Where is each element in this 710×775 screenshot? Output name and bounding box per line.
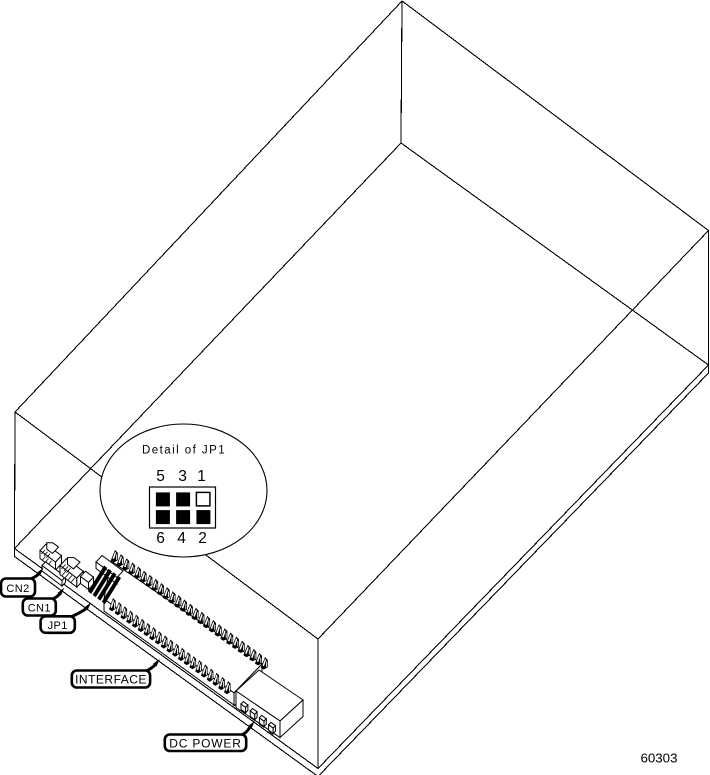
svg-text:60303: 60303 xyxy=(641,751,678,766)
svg-text:JP1: JP1 xyxy=(48,620,68,632)
svg-text:Detail of JP1: Detail of JP1 xyxy=(142,445,226,457)
svg-text:3: 3 xyxy=(178,468,187,485)
svg-text:6: 6 xyxy=(156,530,165,547)
svg-text:INTERFACE: INTERFACE xyxy=(75,673,147,687)
svg-text:1: 1 xyxy=(197,468,206,485)
svg-text:2: 2 xyxy=(198,530,207,547)
svg-text:DC POWER: DC POWER xyxy=(169,737,241,751)
svg-text:4: 4 xyxy=(177,530,186,547)
svg-text:5: 5 xyxy=(156,468,165,485)
svg-text:CN1: CN1 xyxy=(28,602,51,614)
svg-text:CN2: CN2 xyxy=(6,583,29,595)
